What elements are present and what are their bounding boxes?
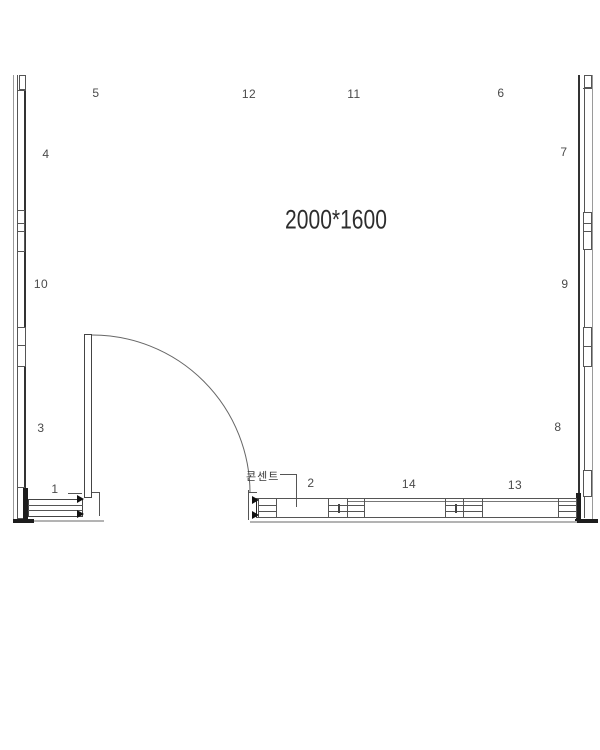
sash-segment-a — [258, 498, 277, 518]
part-label-4: 4 — [42, 147, 49, 161]
part-label-14: 14 — [402, 477, 416, 491]
part-label-2: 2 — [307, 476, 314, 490]
room-size-label: 2000*1600 — [285, 205, 387, 236]
sash-a-line1 — [258, 505, 277, 506]
left-sill-frame — [28, 499, 83, 517]
floor-plan-canvas[interactable]: 2000*1600 콘센트 5 12 11 6 4 7 10 9 3 8 1 2… — [0, 0, 600, 750]
floor-shadow-right — [250, 521, 577, 523]
part-label-3: 3 — [37, 421, 44, 435]
outlet-leader-h — [280, 474, 297, 475]
sash-a-line2 — [258, 511, 277, 512]
label1-leader — [68, 493, 82, 494]
left-sill-line1 — [28, 505, 83, 506]
part-label-10: 10 — [34, 277, 48, 291]
part-label-13: 13 — [508, 478, 522, 492]
floor-shadow-left — [34, 520, 104, 522]
outlet-leader-v — [296, 474, 297, 507]
left-sill-arrow-bottom — [77, 510, 84, 518]
sash-d-line1 — [558, 505, 577, 506]
part-label-11: 11 — [347, 87, 360, 101]
sash-d-line2 — [558, 511, 577, 512]
part-label-7: 7 — [560, 145, 567, 159]
bottom-wall-arrow-bottom — [252, 511, 259, 519]
part-label-5: 5 — [92, 86, 99, 100]
part-label-1: 1 — [51, 482, 58, 496]
bottom-wall-jamb-top — [248, 492, 257, 493]
left-sill-line2 — [28, 510, 83, 511]
bottom-wall-jamb-line — [248, 490, 249, 520]
sash-c-line1 — [445, 505, 483, 506]
sash-c-line2 — [445, 511, 483, 512]
door-jamb-bracket-side — [99, 492, 100, 516]
sash-b-latch — [338, 504, 340, 513]
sash-b-divider — [347, 498, 348, 518]
part-label-8: 8 — [554, 420, 561, 434]
sash-c-latch — [455, 504, 457, 513]
door-swing-arc — [0, 0, 600, 750]
bottom-wall-arrow-top — [252, 496, 259, 504]
sash-segment-c — [445, 498, 483, 518]
part-label-6: 6 — [497, 86, 504, 100]
sash-c-divider — [463, 498, 464, 518]
sash-segment-d — [558, 498, 577, 518]
left-sill-arrow-top — [77, 495, 84, 503]
outlet-label: 콘센트 — [246, 468, 279, 484]
part-label-12: 12 — [242, 87, 256, 101]
part-label-9: 9 — [561, 277, 568, 291]
